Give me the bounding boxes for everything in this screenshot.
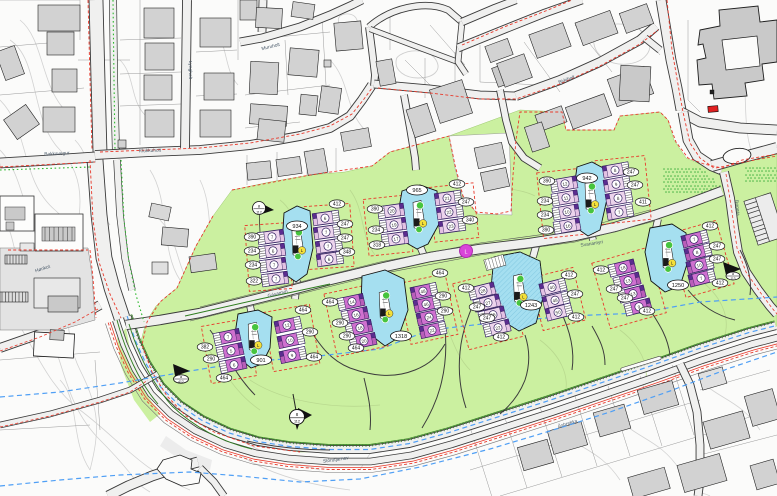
svg-text:464: 464	[436, 271, 445, 277]
svg-text:901: 901	[256, 358, 265, 364]
svg-text:290: 290	[207, 357, 216, 363]
svg-text:412: 412	[333, 202, 342, 208]
svg-text:412: 412	[706, 224, 715, 230]
svg-text:a: a	[180, 375, 182, 379]
svg-text:234: 234	[372, 228, 381, 234]
svg-text:965: 965	[412, 188, 421, 194]
svg-text:390: 390	[542, 228, 551, 234]
svg-text:390: 390	[543, 179, 552, 185]
svg-text:1250: 1250	[672, 283, 684, 289]
svg-text:234: 234	[541, 199, 550, 205]
svg-text:412: 412	[597, 268, 606, 274]
svg-text:412: 412	[497, 335, 506, 341]
svg-text:247: 247	[621, 296, 630, 302]
svg-text:412: 412	[178, 380, 184, 384]
svg-text:390: 390	[371, 207, 380, 213]
svg-text:Klukkuholt: Klukkuholt	[139, 148, 162, 155]
svg-text:348: 348	[343, 250, 352, 256]
svg-text:322: 322	[250, 279, 259, 285]
svg-text:247: 247	[631, 183, 640, 189]
svg-text:464: 464	[326, 300, 335, 306]
svg-text:234: 234	[248, 249, 257, 255]
svg-text:942: 942	[582, 176, 591, 182]
svg-text:464: 464	[299, 308, 308, 314]
svg-text:464: 464	[352, 346, 361, 352]
svg-text:290: 290	[306, 330, 315, 336]
svg-text:290: 290	[441, 309, 450, 315]
svg-text:112: 112	[294, 420, 300, 424]
svg-text:934: 934	[292, 224, 301, 230]
svg-text:412: 412	[572, 315, 581, 321]
svg-text:112: 112	[256, 210, 262, 214]
svg-text:412: 412	[453, 182, 462, 188]
svg-text:1318: 1318	[395, 334, 407, 340]
svg-text:247: 247	[713, 244, 722, 250]
svg-text:412: 412	[565, 273, 574, 279]
svg-text:1243: 1243	[525, 303, 537, 309]
svg-text:464: 464	[310, 355, 319, 361]
svg-text:a: a	[732, 272, 734, 276]
svg-text:412: 412	[462, 286, 471, 292]
svg-text:412: 412	[716, 281, 725, 287]
svg-text:113: 113	[730, 277, 735, 281]
svg-text:234: 234	[541, 213, 550, 219]
svg-text:340: 340	[466, 218, 475, 224]
svg-text:247: 247	[627, 170, 636, 176]
svg-text:247: 247	[341, 236, 350, 242]
svg-text:247: 247	[483, 316, 492, 322]
svg-text:247: 247	[571, 292, 580, 298]
svg-text:290: 290	[343, 334, 352, 340]
svg-text:247: 247	[462, 200, 471, 206]
svg-text:247: 247	[341, 222, 350, 228]
svg-text:247: 247	[713, 257, 722, 263]
svg-text:247: 247	[473, 305, 482, 311]
svg-text:Lyngholt: Lyngholt	[187, 61, 193, 80]
svg-text:290: 290	[336, 321, 345, 327]
svg-text:411: 411	[639, 200, 647, 206]
svg-text:290: 290	[439, 294, 448, 300]
svg-text:247: 247	[610, 287, 619, 293]
svg-text:L: L	[464, 250, 467, 256]
svg-text:318: 318	[373, 243, 382, 249]
svg-text:234: 234	[249, 263, 258, 269]
svg-text:412: 412	[643, 309, 652, 315]
svg-text:382: 382	[201, 345, 210, 351]
svg-text:464: 464	[220, 376, 229, 382]
svg-text:390: 390	[248, 235, 257, 241]
